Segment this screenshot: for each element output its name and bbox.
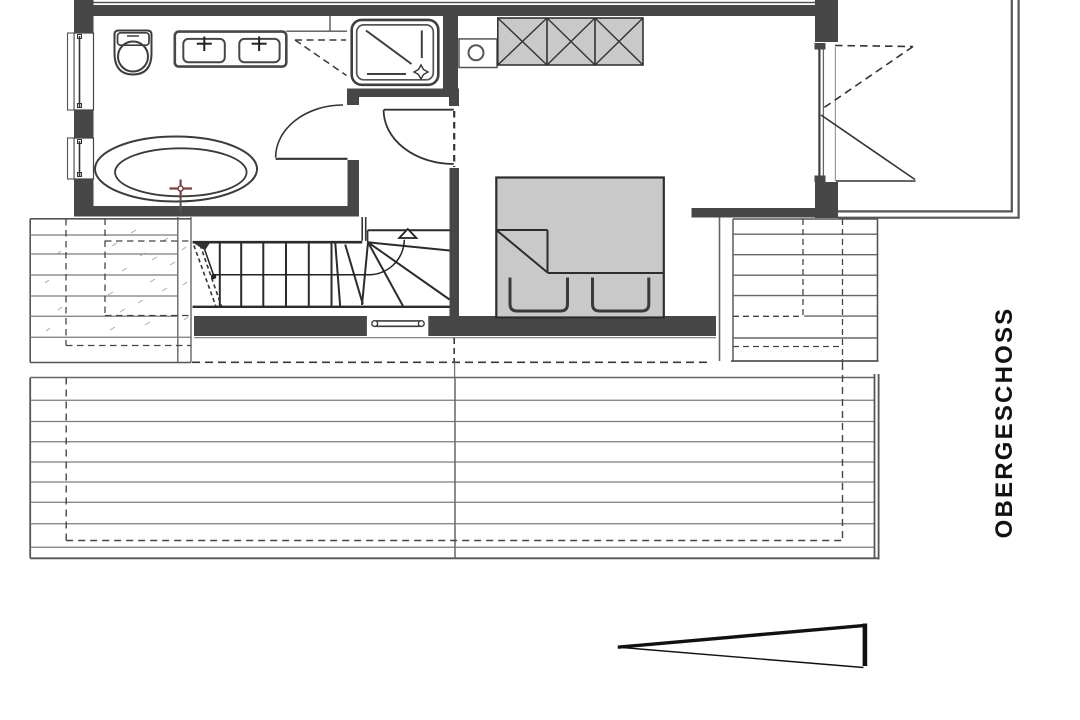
svg-text:OBERGESCHOSS: OBERGESCHOSS — [991, 307, 1018, 539]
